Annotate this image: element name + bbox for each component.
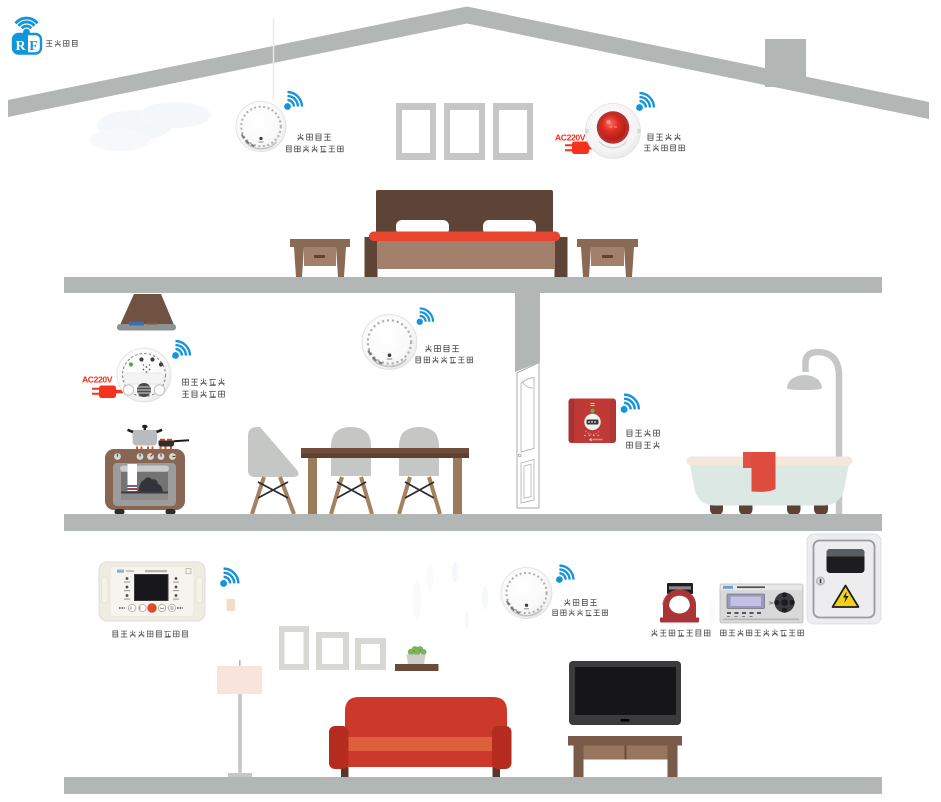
svg-text:AC220V: AC220V	[555, 133, 586, 143]
svg-text:R: R	[15, 39, 26, 54]
svg-text:F: F	[29, 39, 38, 54]
svg-text:AC220V: AC220V	[82, 375, 113, 385]
